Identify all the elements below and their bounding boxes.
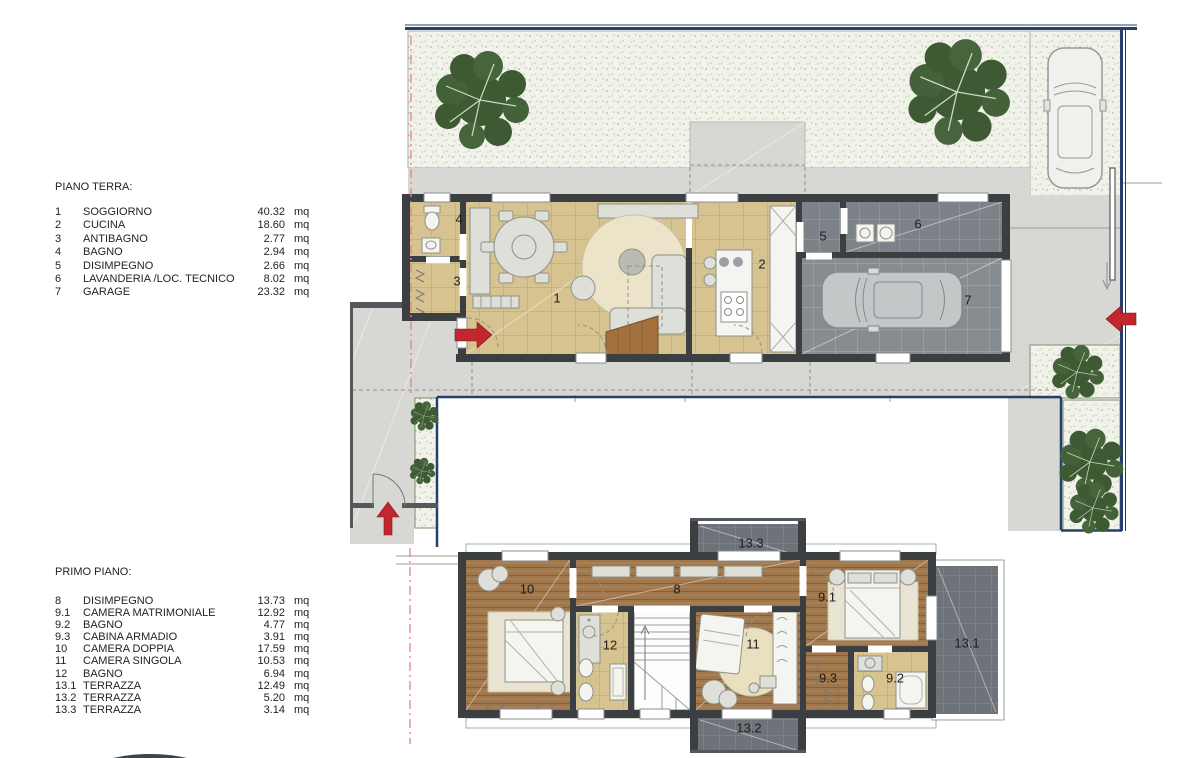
- room-name: TERRAZZA: [83, 680, 241, 692]
- room-number: 7: [55, 286, 83, 299]
- room-name: BAGNO: [83, 246, 241, 259]
- plan-label-singola: 11: [746, 637, 760, 652]
- area-unit: mq: [294, 273, 309, 286]
- legend-first-title: PRIMO PIANO:: [55, 566, 309, 578]
- room-area: 5.20: [241, 692, 285, 704]
- sliding-gate: [1110, 168, 1115, 280]
- room-number: 9.2: [55, 619, 83, 631]
- room-name: GARAGE: [83, 286, 241, 299]
- room-number: 9.3: [55, 631, 83, 643]
- room-area: 18.60: [241, 219, 285, 232]
- legend-ground-title: PIANO TERRA:: [55, 181, 309, 193]
- room-area: 4.77: [241, 619, 285, 631]
- legend-row: 5 DISIMPEGNO 2.66 mq: [55, 260, 309, 273]
- first-floor-plan: [396, 518, 1004, 753]
- plan-label-antibagno: 3: [453, 274, 460, 289]
- legend-row: 9.3 CABINA ARMADIO 3.91 mq: [55, 631, 309, 643]
- room-name: DISIMPEGNO: [83, 595, 241, 607]
- legend-row: 9.1 CAMERA MATRIMONIALE 12.92 mq: [55, 607, 309, 619]
- room-name: CAMERA SINGOLA: [83, 655, 241, 667]
- room-area: 8.02: [241, 273, 285, 286]
- legend-row: 13.1 TERRAZZA 12.49 mq: [55, 680, 309, 692]
- plan-label-matrimoniale: 9.1: [818, 590, 836, 605]
- legend-row: 6 LAVANDERIA /LOC. TECNICO 8.02 mq: [55, 273, 309, 286]
- room-name: CAMERA DOPPIA: [83, 643, 241, 655]
- legend-ground-floor: PIANO TERRA: 1 SOGGIORNO 40.32 mq 2 CUCI…: [55, 181, 309, 300]
- plan-label-cabina: 9.3: [819, 671, 837, 686]
- room-area: 2.66: [241, 260, 285, 273]
- area-unit: mq: [294, 655, 309, 667]
- logo-fragment: [72, 754, 228, 758]
- room-number: 2: [55, 219, 83, 232]
- legend-row: 2 CUCINA 18.60 mq: [55, 219, 309, 232]
- site-plan: [350, 25, 1162, 547]
- area-unit: mq: [294, 680, 309, 692]
- area-unit: mq: [294, 246, 309, 259]
- room-number: 10: [55, 643, 83, 655]
- plan-label-disimpegno: 5: [819, 229, 826, 244]
- room-number: 8: [55, 595, 83, 607]
- room-area: 2.94: [241, 246, 285, 259]
- room-name: BAGNO: [83, 668, 241, 680]
- legend-row: 4 BAGNO 2.94 mq: [55, 246, 309, 259]
- plan-label-terrazza2: 13.2: [736, 721, 761, 736]
- plan-label-terrazza1: 13.1: [954, 636, 979, 651]
- area-unit: mq: [294, 286, 309, 299]
- room-name: CABINA ARMADIO: [83, 631, 241, 643]
- room-name: ANTIBAGNO: [83, 233, 241, 246]
- legend-row: 8 DISIMPEGNO 13.73 mq: [55, 595, 309, 607]
- legend-row: 9.2 BAGNO 4.77 mq: [55, 619, 309, 631]
- room-number: 11: [55, 655, 83, 667]
- plan-label-bagno12: 12: [603, 638, 617, 653]
- room-area: 40.32: [241, 206, 285, 219]
- legend-row: 1 SOGGIORNO 40.32 mq: [55, 206, 309, 219]
- area-unit: mq: [294, 206, 309, 219]
- room-name: SOGGIORNO: [83, 206, 241, 219]
- area-unit: mq: [294, 595, 309, 607]
- area-unit: mq: [294, 619, 309, 631]
- legend-row: 13.2 TERRAZZA 5.20 mq: [55, 692, 309, 704]
- area-unit: mq: [294, 260, 309, 273]
- room-number: 13.3: [55, 704, 83, 716]
- legend-row: 11 CAMERA SINGOLA 10.53 mq: [55, 655, 309, 667]
- plan-label-doppia: 10: [520, 582, 534, 597]
- room-name: TERRAZZA: [83, 704, 241, 716]
- room-disimpegno-floor: [802, 202, 840, 252]
- room-area: 23.32: [241, 286, 285, 299]
- driveway: [1008, 195, 1122, 346]
- room-area: 10.53: [241, 655, 285, 667]
- room-number: 13.2: [55, 692, 83, 704]
- bench: [473, 296, 519, 308]
- room-area: 6.94: [241, 668, 285, 680]
- car-garage-icon: [822, 268, 962, 332]
- legend-first-floor: PRIMO PIANO: 8 DISIMPEGNO 13.73 mq 9.1 C…: [55, 566, 309, 716]
- plan-label-soggiorno: 1: [553, 291, 560, 306]
- legend-row: 12 BAGNO 6.94 mq: [55, 668, 309, 680]
- room-area: 12.92: [241, 607, 285, 619]
- kitchen-tall-units: [770, 206, 796, 352]
- plan-label-terrazza3: 13.3: [738, 536, 763, 551]
- tv-cabinet: [598, 204, 698, 218]
- room-area: 12.49: [241, 680, 285, 692]
- legend-row: 7 GARAGE 23.32 mq: [55, 286, 309, 299]
- room-number: 13.1: [55, 680, 83, 692]
- room-number: 12: [55, 668, 83, 680]
- room-number: 3: [55, 233, 83, 246]
- area-unit: mq: [294, 631, 309, 643]
- plan-label-bagno92: 9.2: [886, 671, 904, 686]
- room-name: CAMERA MATRIMONIALE: [83, 607, 241, 619]
- concrete-patch: [690, 122, 805, 167]
- plan-label-bagno: 4: [455, 212, 462, 227]
- legend-row: 3 ANTIBAGNO 2.77 mq: [55, 233, 309, 246]
- stairs-first: [634, 612, 690, 710]
- room-number: 9.1: [55, 607, 83, 619]
- room-area: 3.91: [241, 631, 285, 643]
- room-name: BAGNO: [83, 619, 241, 631]
- area-unit: mq: [294, 704, 309, 716]
- camera-matrimoniale-furniture: [828, 569, 918, 640]
- plan-label-disimpegno1: 8: [673, 582, 680, 597]
- room-area: 3.14: [241, 704, 285, 716]
- legend-row: 13.3 TERRAZZA 3.14 mq: [55, 704, 309, 716]
- area-unit: mq: [294, 219, 309, 232]
- sidewalk-bottom: [352, 362, 1008, 397]
- room-name: TERRAZZA: [83, 692, 241, 704]
- room-number: 6: [55, 273, 83, 286]
- room-area: 17.59: [241, 643, 285, 655]
- area-unit: mq: [294, 692, 309, 704]
- room-name: CUCINA: [83, 219, 241, 232]
- floorplan-sheet: PIANO TERRA: 1 SOGGIORNO 40.32 mq 2 CUCI…: [0, 0, 1191, 758]
- car-parked-icon: [1044, 48, 1106, 188]
- area-unit: mq: [294, 643, 309, 655]
- room-number: 1: [55, 206, 83, 219]
- room-area: 13.73: [241, 595, 285, 607]
- area-unit: mq: [294, 233, 309, 246]
- room-number: 5: [55, 260, 83, 273]
- legend-row: 10 CAMERA DOPPIA 17.59 mq: [55, 643, 309, 655]
- room-name: DISIMPEGNO: [83, 260, 241, 273]
- plan-label-garage: 7: [964, 293, 971, 308]
- area-unit: mq: [294, 607, 309, 619]
- room-number: 4: [55, 246, 83, 259]
- room-name: LAVANDERIA /LOC. TECNICO: [83, 273, 241, 286]
- plan-label-cucina: 2: [758, 257, 765, 272]
- plan-label-lavanderia: 6: [914, 217, 921, 232]
- room-area: 2.77: [241, 233, 285, 246]
- area-unit: mq: [294, 668, 309, 680]
